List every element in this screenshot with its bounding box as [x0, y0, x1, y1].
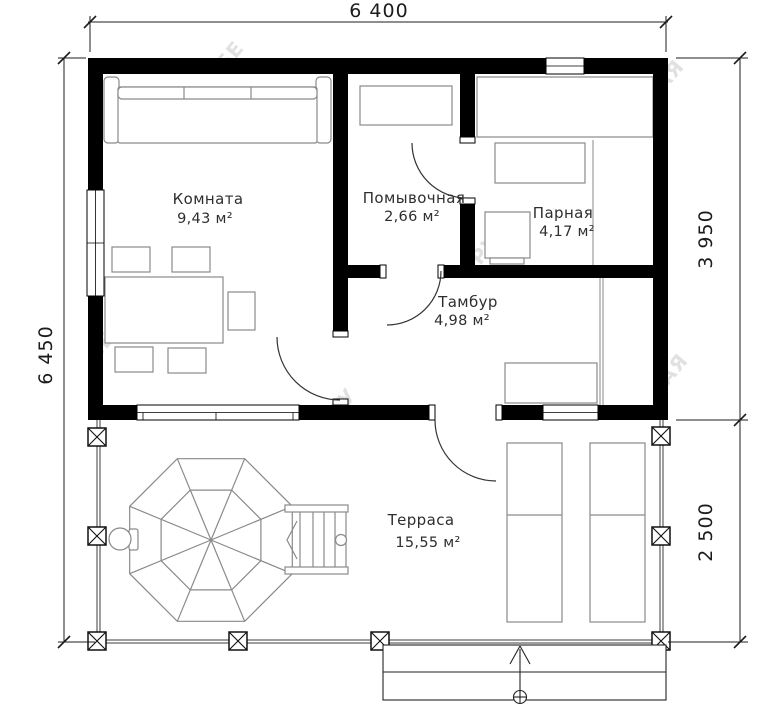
dining-table [105, 277, 223, 343]
floor-plan-drawing: БЕ АЯ СЕ РУ АЯ РУ [0, 0, 772, 726]
entrance-door-opening [429, 405, 502, 420]
room-label-komnata: Комната [173, 190, 244, 208]
tub-porthole [109, 528, 131, 550]
column [652, 527, 670, 545]
room-label-tambur: Тамбур [437, 293, 498, 311]
floor-plan-page: БЕ АЯ СЕ РУ АЯ РУ [0, 0, 772, 726]
dimension-left-label: 6 450 [35, 325, 57, 384]
door-entrance [435, 420, 496, 481]
loungers [507, 443, 645, 622]
dimension-top: 6 400 [84, 0, 672, 52]
stove-mouth [490, 258, 524, 264]
room-area-komnata: 9,43 м² [177, 211, 233, 227]
room-label-terrasa: Терраса [387, 511, 455, 529]
stove [485, 212, 530, 258]
entrance-steps [383, 645, 666, 704]
window-bottom-vestibule [543, 405, 598, 420]
room-area-parnaya: 4,17 м² [539, 224, 595, 240]
chair [115, 347, 153, 372]
door-washing-room [387, 271, 441, 325]
window-left-wall [87, 190, 104, 296]
column [652, 427, 670, 445]
steam-bench-upper [477, 77, 653, 137]
dimension-right-lower-label: 2 500 [695, 502, 717, 561]
chair [172, 247, 210, 272]
column [88, 527, 106, 545]
chair [168, 348, 206, 373]
steam-bench-lower [495, 143, 585, 183]
lounger [590, 443, 645, 622]
tub-ladder [285, 505, 348, 574]
chair [112, 247, 150, 272]
door-living-room [277, 337, 340, 400]
column [88, 632, 106, 650]
dimension-right: 3 950 2 500 [668, 52, 748, 648]
column [229, 632, 247, 650]
room-label-parnaya: Парная [533, 204, 593, 222]
lounger [507, 443, 562, 622]
window-bottom-living [137, 405, 299, 420]
column [88, 428, 106, 446]
sofa [104, 77, 331, 143]
chair [228, 292, 255, 330]
room-area-tambur: 4,98 м² [434, 313, 490, 329]
room-area-pomyvochnaya: 2,66 м² [384, 209, 440, 225]
washroom-bench [360, 86, 452, 125]
dining-set [105, 247, 255, 373]
room-area-terrasa: 15,55 м² [395, 535, 460, 551]
vestibule-furniture [505, 278, 603, 405]
window-top-steam [546, 58, 584, 74]
dimension-right-upper-label: 3 950 [695, 209, 717, 268]
hot-tub-octagon [109, 459, 292, 622]
vestibule-bench [505, 363, 597, 403]
dimension-top-label: 6 400 [349, 0, 408, 22]
room-label-pomyvochnaya: Помывочная [363, 189, 466, 207]
